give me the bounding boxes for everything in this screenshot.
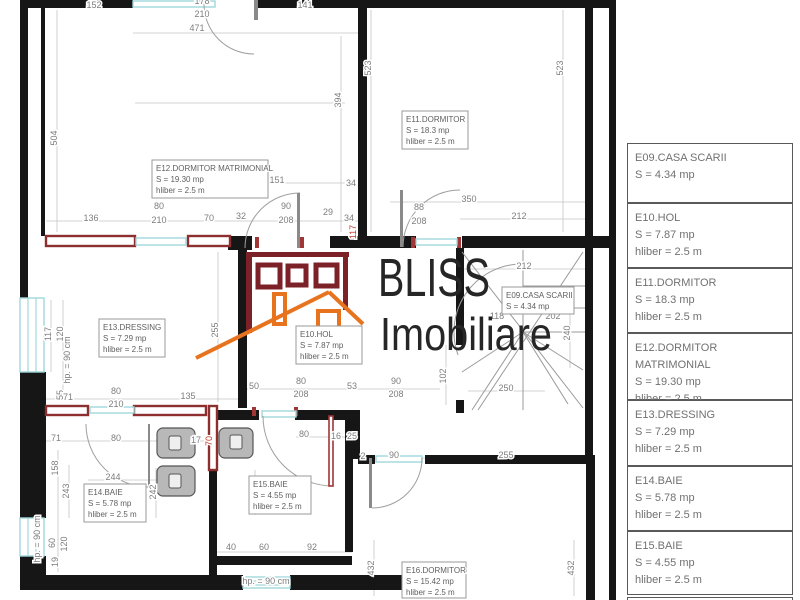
- room-label-text: hliber = 2.5 m: [300, 352, 349, 361]
- dimension-label: 60: [259, 542, 269, 552]
- dimension-label: 178: [194, 0, 209, 6]
- room-label-text: E14.BAIE: [88, 488, 123, 497]
- red-wall: [134, 406, 206, 415]
- wall: [358, 236, 416, 248]
- dimension-label: 471: [189, 23, 204, 33]
- dimension-label: 92: [307, 542, 317, 552]
- dimension-label: 242: [148, 484, 158, 499]
- dimension-label: 53: [347, 381, 357, 391]
- red-wall: [46, 236, 135, 246]
- brand-line2: Imobiliare: [380, 308, 552, 360]
- dimension-label: 255: [210, 322, 220, 337]
- wall: [295, 410, 353, 420]
- dimension-label: 16: [331, 431, 341, 441]
- room-label-text: S = 15.42 mp: [406, 577, 454, 586]
- dimension-label: 2: [360, 451, 365, 461]
- dimension-label: 152: [86, 0, 101, 10]
- wall: [585, 248, 593, 455]
- room-label-text: hliber = 2.5 m: [253, 502, 302, 511]
- wall: [20, 0, 28, 298]
- door-leaf: [400, 190, 403, 247]
- dimension-label: 70: [204, 213, 214, 223]
- dimension-label: 243: [61, 483, 71, 498]
- dimension-label: hp. = 90 cm: [32, 515, 42, 562]
- wall: [217, 556, 352, 565]
- logo-bar: [246, 252, 252, 333]
- room-label-text: E13.DRESSING: [103, 323, 161, 332]
- dimension-label: 212: [511, 211, 526, 221]
- dimension-label: 40: [226, 542, 236, 552]
- dimension-label: 80: [111, 433, 121, 443]
- dimension-label: 80: [299, 429, 309, 439]
- room-label: E10.HOLS = 7.87 mphliber = 2.5 m: [296, 326, 362, 364]
- dimension-label: 432: [366, 560, 376, 575]
- dimension-label: 504: [49, 130, 59, 145]
- door-arc: [372, 458, 422, 508]
- wall: [20, 0, 133, 8]
- room-label-text: hliber = 2.5 m: [156, 186, 205, 195]
- door-leaf: [329, 416, 333, 486]
- room-label-text: hliber = 2.5 m: [88, 510, 137, 519]
- dimension-label: 255: [498, 450, 513, 460]
- wall: [585, 8, 593, 248]
- floor-plan-drawing: 1521782101414715043945235231368021070329…: [0, 0, 800, 600]
- dimension-label: 136: [83, 213, 98, 223]
- room-label-text: E10.HOL: [300, 330, 333, 339]
- dimension-label: 88: [414, 202, 424, 212]
- dimension-label: 80: [154, 201, 164, 211]
- dimension-label: 90: [389, 450, 399, 460]
- door-arc: [204, 4, 254, 54]
- room-label: E14.BAIES = 5.78 mphliber = 2.5 m: [84, 484, 146, 522]
- red-wall: [188, 236, 230, 246]
- wall: [20, 406, 46, 416]
- toilet-icon: [219, 428, 253, 458]
- dimension-label: 34: [344, 213, 354, 223]
- dimension-label: 80: [296, 376, 306, 386]
- dimension-label: 117: [43, 327, 53, 341]
- wall: [41, 8, 45, 236]
- dimension-label: 29: [323, 207, 333, 217]
- dimension-label: 350: [461, 194, 476, 204]
- window: [20, 298, 44, 372]
- dimension-label: 210: [151, 215, 166, 225]
- room-label-text: hliber = 2.5 m: [103, 345, 152, 354]
- room-label-text: E16.DORMITOR: [406, 566, 466, 575]
- door-leaf: [148, 424, 150, 487]
- dimension-label: 151: [269, 175, 284, 185]
- door-leaf: [254, 0, 258, 20]
- wall: [20, 575, 243, 590]
- room-label: E13.DRESSINGS = 7.29 mphliber = 2.5 m: [99, 319, 165, 357]
- dimension-label: 60: [47, 538, 57, 548]
- dimension-label: 32: [236, 211, 246, 221]
- dimension-label: 25: [347, 431, 357, 441]
- wall: [456, 400, 464, 413]
- door-jamb: [252, 407, 256, 416]
- toilet-icon: [157, 428, 195, 458]
- wall: [462, 236, 609, 248]
- dimension-label: 523: [363, 60, 373, 75]
- wall: [209, 470, 217, 576]
- dimension-label: 158: [50, 460, 60, 475]
- door-jamb: [300, 237, 304, 248]
- room-label-text: S = 4.55 mp: [253, 491, 297, 500]
- logo-window-icon: [258, 265, 280, 287]
- dimension-label: 17: [191, 435, 201, 445]
- logo-bar: [246, 252, 349, 257]
- dimension-label: 19: [50, 557, 60, 567]
- floor-plan-page: 1521782101414715043945235231368021070329…: [0, 0, 800, 600]
- dimension-label: 394: [333, 92, 343, 107]
- door-leaf: [297, 193, 300, 248]
- room-label-text: hliber = 2.5 m: [406, 588, 455, 597]
- dimension-label: 117: [348, 225, 358, 239]
- dimension-label: 34: [346, 178, 356, 188]
- door-threshold: [136, 238, 186, 245]
- door-jamb: [411, 237, 415, 248]
- room-label-text: S = 5.78 mp: [88, 499, 132, 508]
- dimension-label: 432: [566, 560, 576, 575]
- room-label-text: E09.CASA SCARII: [506, 291, 573, 300]
- wall: [609, 0, 616, 600]
- dimension-label: 90: [391, 376, 401, 386]
- room-label-text: E15.BAIE: [253, 480, 288, 489]
- room-label-text: E11.DORMITOR: [406, 115, 465, 124]
- dimension-label: 208: [411, 216, 426, 226]
- dimension-label: 71: [63, 392, 73, 402]
- brand-line1: BLISS: [378, 248, 490, 308]
- room-label: E16.DORMITORS = 15.42 mphliber = 2.5 m: [402, 562, 466, 598]
- chimney-icon: [274, 294, 285, 324]
- logo-window-icon: [288, 266, 306, 285]
- dimension-label: 71: [51, 433, 61, 443]
- dimension-label: 135: [180, 391, 195, 401]
- dimension-label: 210: [108, 399, 123, 409]
- logo-window-icon: [316, 265, 337, 286]
- dimension-label: 70: [204, 436, 214, 446]
- dimension-label: 208: [388, 389, 403, 399]
- dimension-label: 210: [194, 9, 209, 19]
- dimension-label: 120: [59, 536, 69, 551]
- dimension-label: 141: [297, 0, 312, 10]
- room-label-text: S = 7.29 mp: [103, 334, 147, 343]
- room-label-text: S = 7.87 mp: [300, 341, 344, 350]
- dimension-label: 240: [562, 325, 572, 340]
- door-threshold: [262, 411, 296, 417]
- dimension-label: 90: [281, 201, 291, 211]
- room-label-text: S = 18.3 mp: [406, 126, 450, 135]
- dimension-label: 102: [438, 368, 448, 383]
- dimension-label: 50: [249, 381, 259, 391]
- dimension-label: 212: [516, 261, 531, 271]
- dimension-label: 208: [278, 215, 293, 225]
- wall: [238, 248, 247, 408]
- room-label: E12.DORMITOR MATRIMONIALS = 19.30 mphlib…: [152, 160, 274, 198]
- toilet-icon: [157, 466, 195, 496]
- room-label-text: hliber = 2.5 m: [406, 137, 455, 146]
- dimension-label: 523: [555, 60, 565, 75]
- dimension-label: 80: [111, 386, 121, 396]
- door-threshold: [416, 239, 457, 245]
- door-jamb: [255, 237, 259, 248]
- red-wall: [46, 406, 88, 415]
- wall: [20, 372, 46, 518]
- room-label-text: E12.DORMITOR MATRIMONIAL: [156, 164, 274, 173]
- wall: [586, 455, 595, 600]
- dimension-label: hp. = 90 cm: [242, 576, 289, 586]
- dimension-label: 208: [293, 389, 308, 399]
- room-label: E11.DORMITORS = 18.3 mphliber = 2.5 m: [402, 111, 468, 149]
- room-label: E15.BAIES = 4.55 mphliber = 2.5 m: [249, 476, 311, 514]
- door-leaf: [369, 458, 372, 508]
- room-label-text: S = 19.30 mp: [156, 175, 204, 184]
- wall: [358, 8, 367, 248]
- logo-bar: [343, 252, 348, 310]
- dimension-label: 250: [498, 383, 513, 393]
- wall: [228, 236, 252, 250]
- dimension-label: hp. = 90 cm: [62, 336, 72, 383]
- dimension-label: 244: [105, 472, 120, 482]
